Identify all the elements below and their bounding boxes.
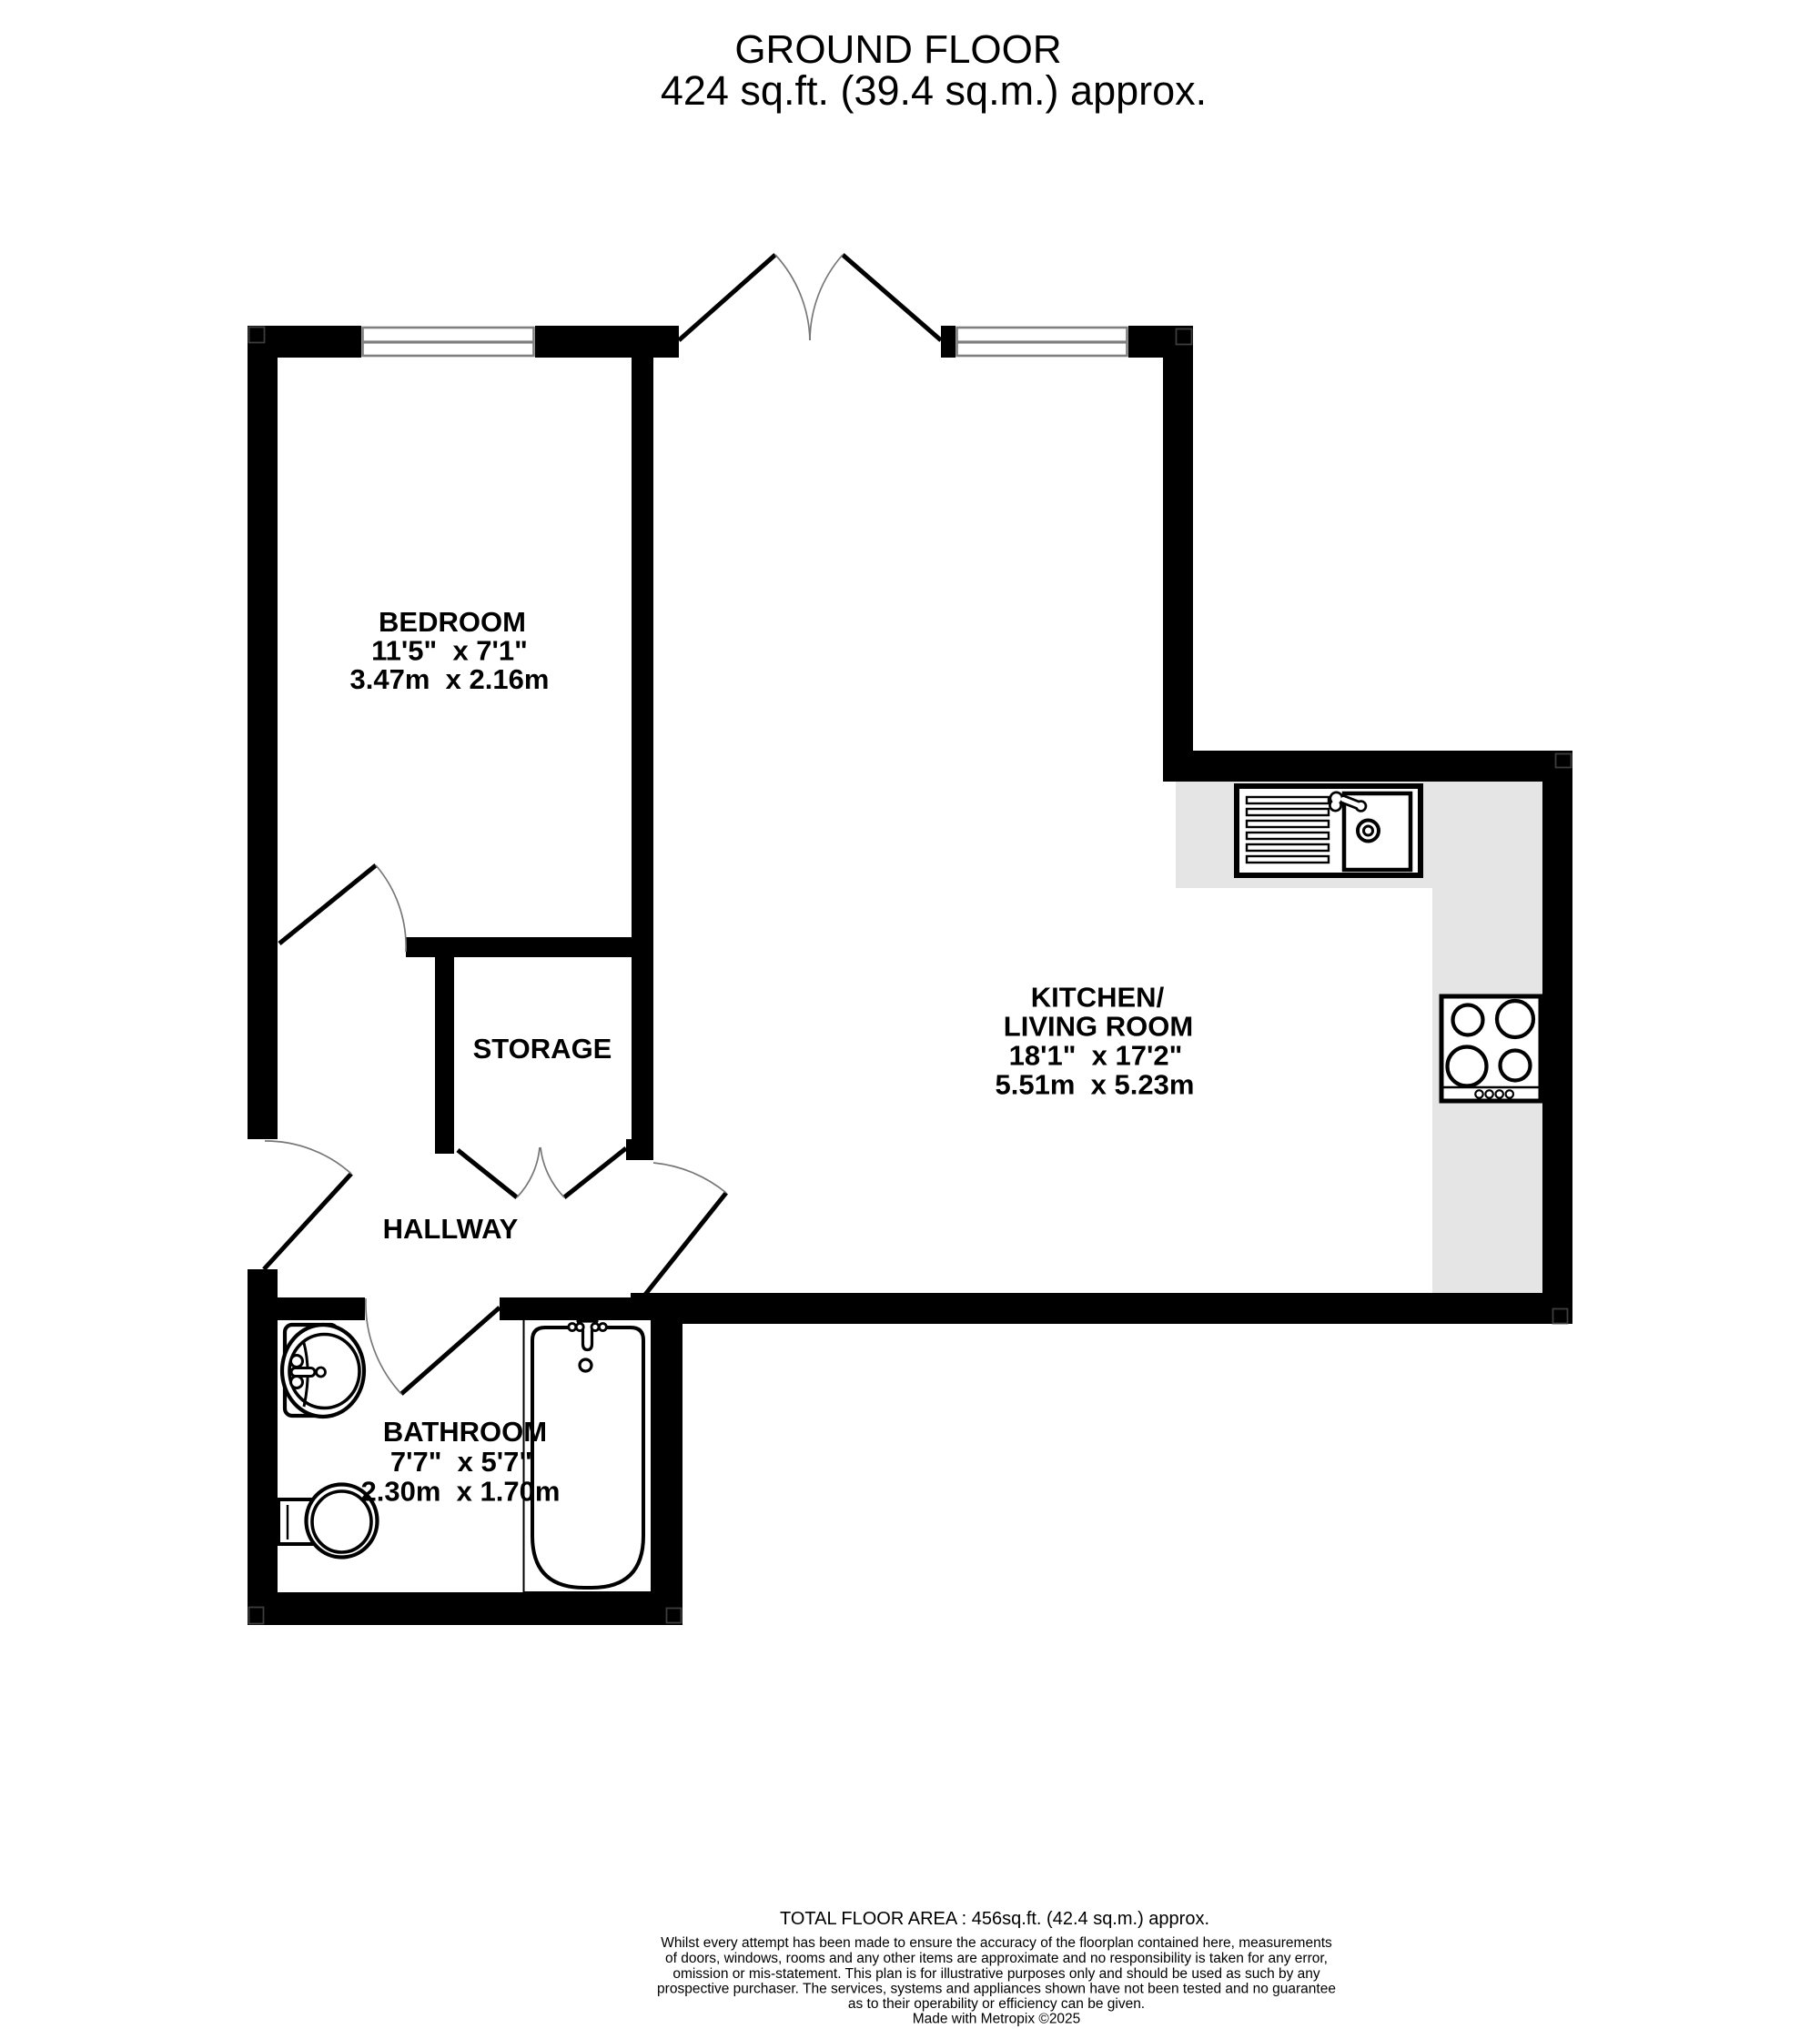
svg-text:KITCHEN/: KITCHEN/ bbox=[1031, 982, 1165, 1014]
svg-text:prospective purchaser. The ser: prospective purchaser. The services, sys… bbox=[657, 1982, 1336, 1997]
svg-text:2.30m x 1.70m: 2.30m x 1.70m bbox=[361, 1476, 561, 1508]
svg-text:11'5" x 7'1": 11'5" x 7'1" bbox=[371, 635, 528, 667]
svg-text:Whilst every attempt has been: Whilst every attempt has been made to en… bbox=[661, 1935, 1332, 1951]
svg-text:18'1" x 17'2": 18'1" x 17'2" bbox=[1009, 1040, 1183, 1072]
svg-text:of doors, windows, rooms and a: of doors, windows, rooms and any other i… bbox=[665, 1951, 1328, 1966]
svg-text:omission or mis-statement. Thi: omission or mis-statement. This plan is … bbox=[672, 1966, 1320, 1982]
svg-text:BATHROOM: BATHROOM bbox=[383, 1416, 547, 1448]
svg-text:BEDROOM: BEDROOM bbox=[379, 606, 526, 638]
svg-text:as to their operability or eff: as to their operability or efficiency ca… bbox=[848, 1996, 1145, 2012]
svg-text:7'7" x 5'7": 7'7" x 5'7" bbox=[390, 1446, 532, 1478]
svg-text:424 sq.ft. (39.4 sq.m.) approx: 424 sq.ft. (39.4 sq.m.) approx. bbox=[661, 67, 1207, 114]
svg-text:LIVING ROOM: LIVING ROOM bbox=[1004, 1011, 1193, 1043]
svg-text:STORAGE: STORAGE bbox=[473, 1033, 612, 1065]
svg-text:3.47m x 2.16m: 3.47m x 2.16m bbox=[350, 663, 550, 695]
svg-text:TOTAL FLOOR AREA : 456sq.ft. (: TOTAL FLOOR AREA : 456sq.ft. (42.4 sq.m.… bbox=[780, 1909, 1209, 1929]
svg-text:Made with Metropix ©2025: Made with Metropix ©2025 bbox=[913, 2012, 1081, 2027]
svg-text:GROUND FLOOR: GROUND FLOOR bbox=[734, 27, 1061, 72]
svg-text:HALLWAY: HALLWAY bbox=[383, 1213, 519, 1245]
svg-text:5.51m x 5.23m: 5.51m x 5.23m bbox=[996, 1069, 1195, 1101]
